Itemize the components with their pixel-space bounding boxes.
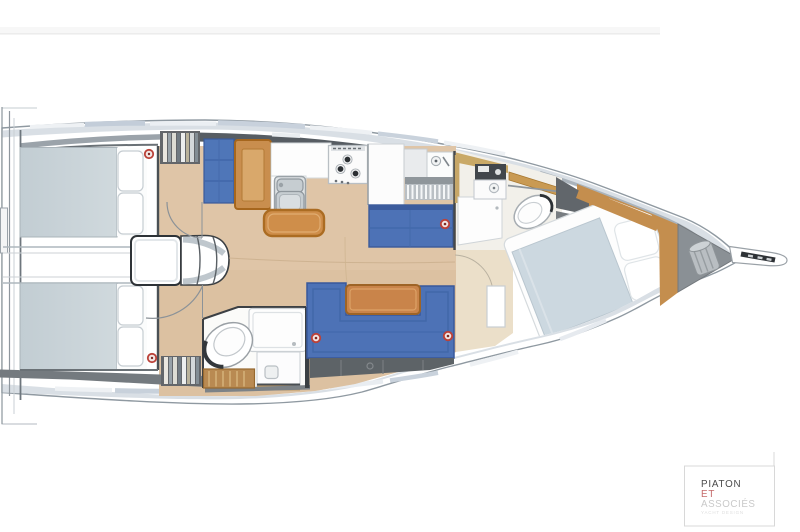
svg-text:ASSOCIÉS: ASSOCIÉS bbox=[701, 499, 756, 510]
svg-text:YACHT DESIGN: YACHT DESIGN bbox=[701, 510, 744, 515]
